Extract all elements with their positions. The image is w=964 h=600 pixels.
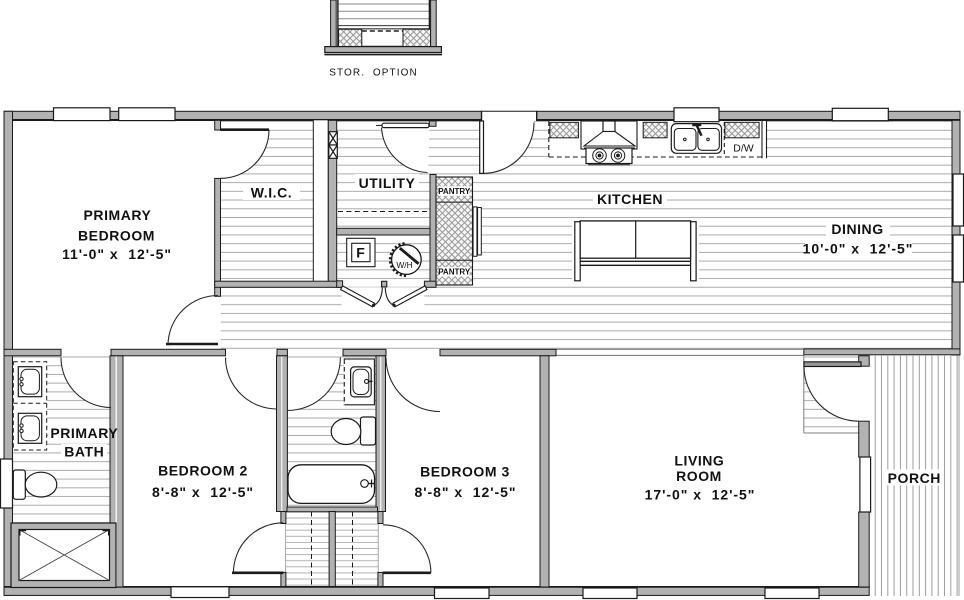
svg-text:17'-0" x 12'-5": 17'-0" x 12'-5"	[645, 486, 756, 502]
svg-text:BEDROOM 3: BEDROOM 3	[420, 463, 510, 479]
svg-text:PANTRY: PANTRY	[438, 187, 471, 196]
svg-text:8'-8" x 12'-5": 8'-8" x 12'-5"	[415, 484, 517, 500]
svg-text:LIVING: LIVING	[674, 452, 724, 468]
svg-text:PRIMARY: PRIMARY	[50, 425, 118, 441]
svg-text:KITCHEN: KITCHEN	[597, 191, 663, 207]
svg-text:UTILITY: UTILITY	[359, 175, 416, 191]
svg-text:W.I.C.: W.I.C.	[251, 185, 292, 201]
svg-text:8'-8" x 12'-5": 8'-8" x 12'-5"	[152, 484, 254, 500]
svg-text:PANTRY: PANTRY	[438, 268, 471, 277]
svg-text:F: F	[356, 245, 365, 261]
svg-text:D/W: D/W	[733, 143, 754, 155]
svg-text:10'-0" x 12'-5": 10'-0" x 12'-5"	[803, 241, 914, 257]
svg-text:BEDROOM: BEDROOM	[78, 227, 155, 243]
svg-text:ROOM: ROOM	[676, 468, 722, 484]
svg-text:STOR. OPTION: STOR. OPTION	[329, 68, 418, 79]
svg-text:DINING: DINING	[831, 221, 883, 237]
svg-text:BATH: BATH	[64, 444, 104, 460]
svg-text:PORCH: PORCH	[888, 470, 941, 486]
svg-text:11'-0" x 12'-5": 11'-0" x 12'-5"	[62, 246, 172, 262]
svg-text:BEDROOM 2: BEDROOM 2	[158, 463, 248, 479]
svg-text:W/H: W/H	[396, 260, 412, 270]
svg-text:PRIMARY: PRIMARY	[84, 207, 152, 223]
